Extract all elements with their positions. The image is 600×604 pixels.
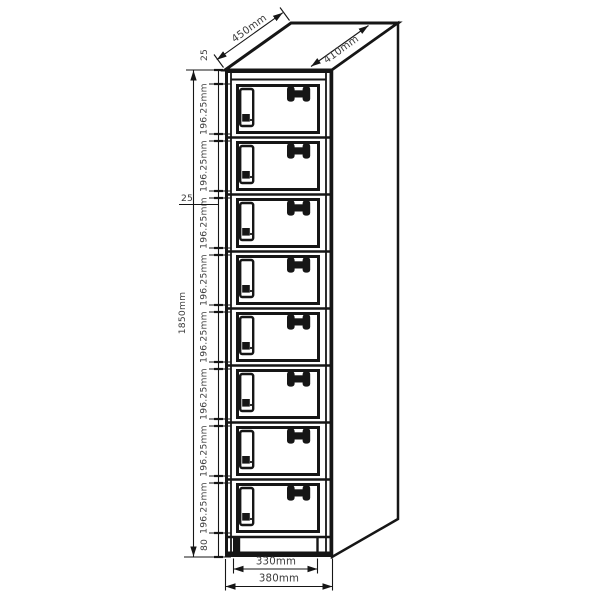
locker-door-5 xyxy=(238,314,319,361)
compartment-height-label-6: 196.25mm xyxy=(199,368,210,420)
technical-drawing-canvas: 1850mm xyxy=(0,0,600,600)
locker-front-face xyxy=(225,71,332,557)
compartment-height-label-5: 196.25mm xyxy=(199,311,210,363)
door-gap-label: 25 xyxy=(181,193,193,204)
compartment-height-label-8: 196.25mm xyxy=(199,482,210,534)
locker-door-6 xyxy=(238,371,319,418)
door-width-label: 330mm xyxy=(256,557,296,568)
locker-door-7 xyxy=(238,428,319,475)
locker-door-1 xyxy=(238,86,319,133)
locker-door-4 xyxy=(238,257,319,304)
overall-width-label: 380mm xyxy=(259,574,299,585)
locker-dimension-drawing: 1850mm xyxy=(0,0,600,600)
top-gap-label: 25 xyxy=(199,49,210,61)
dimension-door-width: 330mm xyxy=(234,557,318,574)
top-depth-label: 450mm xyxy=(230,13,269,45)
locker-door-3 xyxy=(238,200,319,247)
base-height-label: 80 xyxy=(199,539,210,551)
locker-door-2 xyxy=(238,143,319,190)
compartment-height-label-2: 196.25mm xyxy=(199,140,210,192)
compartment-height-label-1: 196.25mm xyxy=(199,83,210,135)
compartment-height-label-7: 196.25mm xyxy=(199,425,210,477)
locker-door-8 xyxy=(238,485,319,532)
compartment-height-label-4: 196.25mm xyxy=(199,254,210,306)
locker-side-panel xyxy=(332,23,398,557)
overall-height-label: 1850mm xyxy=(177,292,188,334)
